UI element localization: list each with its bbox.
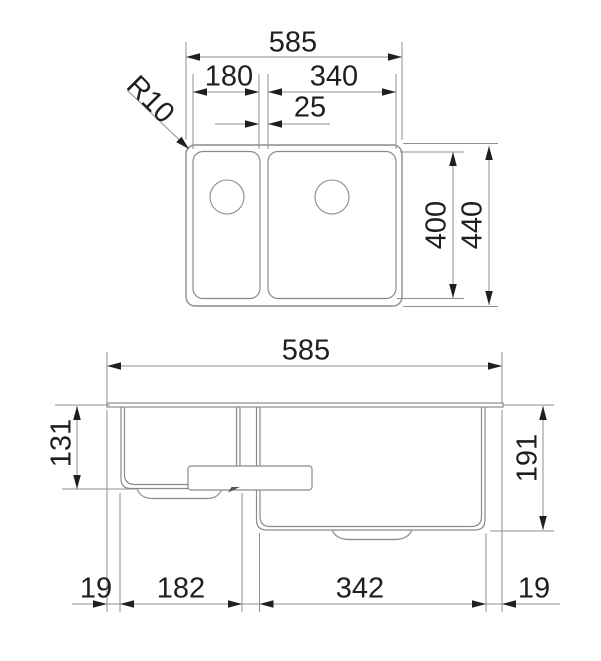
technical-drawing: 585 180 340 25 R10 400 440 585 131 191 1… <box>0 0 601 661</box>
label-bowl-length: 400 <box>423 201 452 249</box>
label-left-bowl-width: 180 <box>205 63 253 92</box>
label-overall-width-front: 585 <box>282 337 330 366</box>
label-right-bowl-width: 340 <box>310 63 358 92</box>
label-right-bowl-bottom-width: 342 <box>336 575 384 604</box>
sink-outer-edge <box>186 145 402 306</box>
right-bowl <box>268 152 396 299</box>
overflow-box <box>188 466 312 490</box>
front-view <box>107 403 503 540</box>
label-left-bowl-depth: 131 <box>48 419 77 467</box>
right-drain-hole <box>315 180 349 214</box>
right-drain-recess <box>332 530 412 540</box>
left-bowl <box>193 152 260 299</box>
label-left-margin: 19 <box>80 575 112 604</box>
label-right-bowl-depth: 191 <box>514 434 543 482</box>
label-overall-length: 440 <box>459 201 488 249</box>
label-right-margin: 19 <box>518 575 550 604</box>
left-drain-hole <box>210 180 244 214</box>
label-bowl-gap: 25 <box>294 94 326 123</box>
label-left-bowl-bottom-width: 182 <box>157 575 205 604</box>
rim-profile <box>107 403 503 407</box>
top-view <box>186 145 402 306</box>
label-overall-width-top: 585 <box>269 29 317 58</box>
